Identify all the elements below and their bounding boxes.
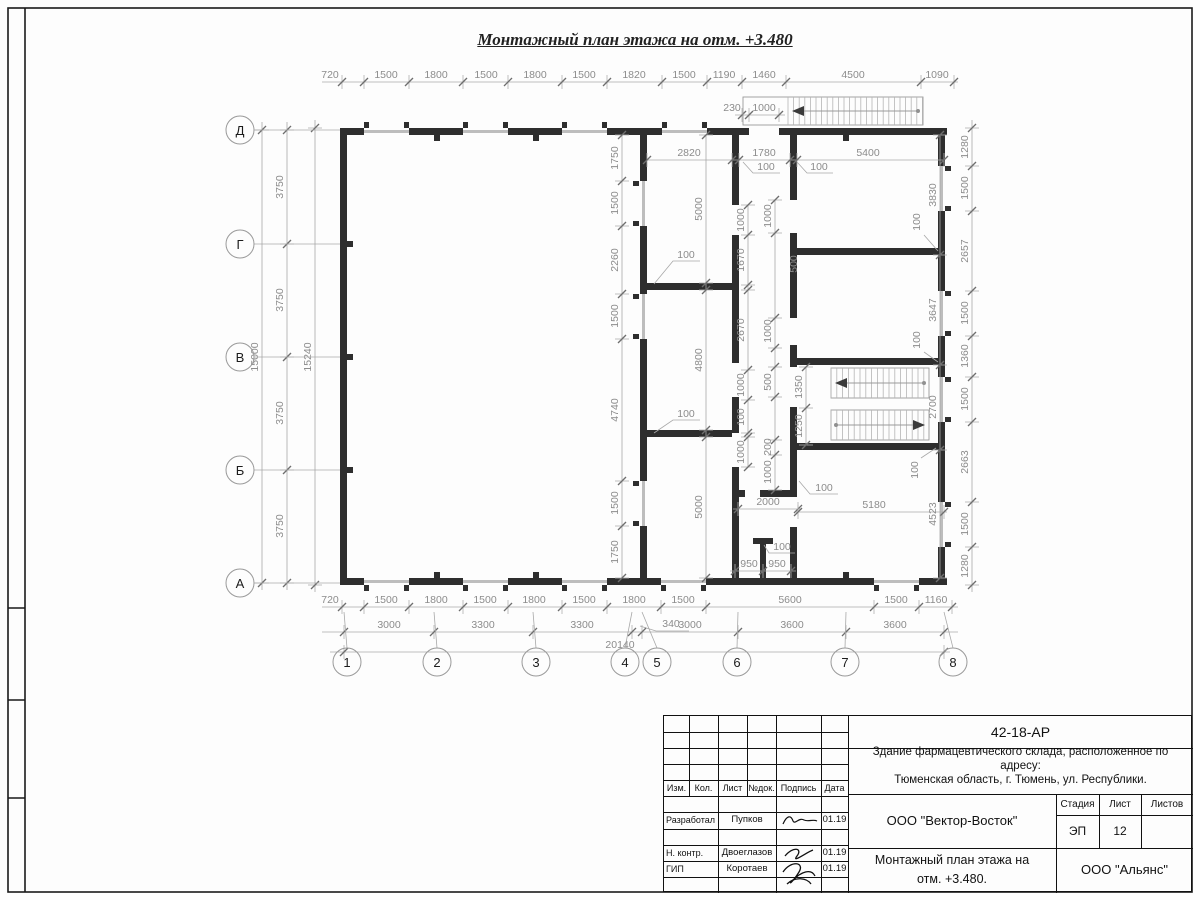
dimension-label: 1670 <box>735 248 747 272</box>
tb-sheet-value: 12 <box>1099 815 1141 848</box>
axis-label-6: 6 <box>733 655 740 670</box>
axis-label-Д: Д <box>236 123 245 138</box>
dimension-label: 3647 <box>927 298 939 322</box>
tb-stage-label: Стадия <box>1056 794 1099 815</box>
dimension-label: 1500 <box>884 594 908 606</box>
tb-company: ООО "Альянс" <box>1056 848 1193 893</box>
tb-doc-number: 42-18-АР <box>848 716 1193 748</box>
dimension-label: 1820 <box>622 69 646 81</box>
dimension-label: 3600 <box>883 619 907 631</box>
dimension-label: 3300 <box>471 619 495 631</box>
dimension-label: 1500 <box>374 69 398 81</box>
dimension-label: 340 <box>662 618 680 630</box>
tb-sheets-label: Листов <box>1141 794 1193 815</box>
dimension-label: 1090 <box>925 69 949 81</box>
dimension-label: 100 <box>810 161 828 173</box>
dimension-label: 720 <box>321 594 339 606</box>
tb-header-list: Лист <box>718 780 747 796</box>
tb-role-ncontrol: Н. контр. <box>666 845 718 861</box>
dimension-label: 1000 <box>752 102 776 114</box>
tb-sheet-label: Лист <box>1099 794 1141 815</box>
dimension-label: 500 <box>762 373 774 391</box>
dimension-label: 5000 <box>693 197 705 221</box>
dimension-label: 1360 <box>959 344 971 368</box>
tb-drawing-title-line2: отм. +3.480. <box>848 869 1056 890</box>
dimension-label: 1500 <box>959 176 971 200</box>
dimension-label: 5000 <box>693 495 705 519</box>
dimension-label: 1350 <box>793 375 805 399</box>
axis-label-5: 5 <box>653 655 660 670</box>
dimension-label: 100 <box>909 461 921 479</box>
dimension-label: 1800 <box>522 594 546 606</box>
drawing-sheet: Монтажный план этажа на отм. +3.480 <box>0 0 1200 900</box>
dimension-label: 1800 <box>622 594 646 606</box>
dimension-label: 2663 <box>959 450 971 474</box>
dimension-label: 1160 <box>925 594 948 606</box>
dimension-label: 100 <box>757 161 775 173</box>
axis-label-Г: Г <box>236 237 243 252</box>
dimension-label: 2000 <box>756 496 780 508</box>
dimension-label: 3600 <box>780 619 804 631</box>
tb-role-developer: Разработал <box>666 812 718 829</box>
dimension-label: 1000 <box>735 373 747 397</box>
tb-role-gip: ГИП <box>666 861 718 877</box>
dimension-label: 1800 <box>523 69 547 81</box>
dimension-label: 3300 <box>570 619 594 631</box>
dimension-label: 5180 <box>862 499 886 511</box>
dimension-label: 1750 <box>609 540 621 564</box>
dimension-label: 1800 <box>424 594 448 606</box>
tb-sheets-value <box>1141 815 1193 848</box>
dimension-label: 100 <box>911 213 923 231</box>
dimension-label: 3830 <box>927 183 939 207</box>
dimension-label: 3750 <box>274 175 286 199</box>
dimension-label: 1000 <box>762 204 774 228</box>
dimension-label: 100 <box>677 408 695 420</box>
axis-label-В: В <box>236 350 245 365</box>
dimension-label: 950 <box>768 558 786 570</box>
tb-org: ООО "Вектор-Восток" <box>848 794 1056 848</box>
dimension-label: 1500 <box>572 69 596 81</box>
dimension-label: 1250 <box>793 414 805 438</box>
dimension-label: 1500 <box>609 491 621 515</box>
tb-project-line1: Здание фармацевтического склада, располо… <box>852 748 1189 771</box>
dimension-label: 1280 <box>959 135 971 159</box>
dimension-label: 100 <box>677 249 695 261</box>
tb-header-date: Дата <box>821 780 848 796</box>
dimension-label: 1500 <box>959 387 971 411</box>
axis-label-2: 2 <box>433 655 440 670</box>
dimension-label: 4500 <box>841 69 865 81</box>
dimension-label: 1750 <box>609 146 621 170</box>
tb-name-gip: Коротаев <box>718 861 776 877</box>
windows <box>364 130 943 583</box>
axis-label-А: А <box>236 576 245 591</box>
dimension-label: 200 <box>762 438 774 456</box>
dimension-label: 1190 <box>713 69 736 81</box>
dimension-label: 5400 <box>856 147 880 159</box>
tb-stage-value: ЭП <box>1056 815 1099 848</box>
axis-label-3: 3 <box>532 655 539 670</box>
dimension-label: 3000 <box>377 619 401 631</box>
dimension-label: 230 <box>723 102 741 114</box>
dimension-label: 1000 <box>735 440 747 464</box>
dimension-label: 1500 <box>473 594 497 606</box>
dimension-label: 720 <box>321 69 339 81</box>
dimension-label: 2820 <box>677 147 701 159</box>
signature-approvers <box>777 842 821 892</box>
signature-developer <box>777 812 821 829</box>
dimension-label: 4800 <box>693 348 705 372</box>
dimension-label: 1800 <box>424 69 448 81</box>
dimension-label: 1500 <box>609 191 621 215</box>
dimension-label: 1280 <box>959 554 971 578</box>
tb-header-kol: Кол. <box>689 780 718 796</box>
dimension-label: 500 <box>788 255 800 273</box>
dimension-label: 1000 <box>762 319 774 343</box>
tb-header-izm: Изм. <box>664 780 689 796</box>
leader-lines <box>640 162 938 631</box>
dimension-label: 1460 <box>752 69 776 81</box>
tb-date-gip: 01.19 <box>821 861 848 877</box>
dimension-label: 100 <box>735 408 747 426</box>
dimension-label: 3750 <box>274 514 286 538</box>
dimension-label: 2657 <box>959 239 971 263</box>
dimension-label: 1780 <box>752 147 776 159</box>
tb-name-ncontrol: Двоеглазов <box>718 845 776 861</box>
axis-label-8: 8 <box>949 655 956 670</box>
dimension-label: 5600 <box>778 594 802 606</box>
tb-header-sign: Подпись <box>776 780 821 796</box>
tb-date-ncontrol: 01.19 <box>821 845 848 861</box>
dimension-label: 1500 <box>672 69 696 81</box>
axis-label-4: 4 <box>621 655 628 670</box>
axis-label-7: 7 <box>841 655 848 670</box>
dimension-label: 950 <box>740 558 758 570</box>
column-marks <box>347 122 951 591</box>
dimension-label: 100 <box>911 331 923 349</box>
tb-date-developer: 01.19 <box>821 812 848 829</box>
stair-direction-arrow <box>913 420 925 430</box>
tb-name-developer: Пупков <box>718 812 776 829</box>
dimension-label: 1000 <box>762 460 774 484</box>
axis-label-Б: Б <box>236 463 245 478</box>
dimension-label: 1500 <box>959 512 971 536</box>
dimension-label: 1500 <box>671 594 695 606</box>
tb-header-ndoc: №док. <box>747 780 776 796</box>
dimension-label: 1500 <box>572 594 596 606</box>
dimension-label: 1500 <box>959 301 971 325</box>
dimension-label: 3750 <box>274 288 286 312</box>
dimension-label: 4740 <box>609 398 621 422</box>
dimension-label: 3000 <box>678 619 702 631</box>
dimension-label: 100 <box>815 482 833 494</box>
dimension-label: 3750 <box>274 401 286 425</box>
dimension-label: 2670 <box>735 318 747 342</box>
title-block: Изм. Кол. Лист №док. Подпись Дата Разраб… <box>663 715 1192 892</box>
dimension-label: 100 <box>773 541 791 553</box>
dimension-label: 1500 <box>609 304 621 328</box>
dimension-label: 2260 <box>609 248 621 272</box>
dimension-label: 1500 <box>374 594 398 606</box>
tb-drawing-title-line1: Монтажный план этажа на <box>848 850 1056 871</box>
axis-label-1: 1 <box>343 655 350 670</box>
dimension-label: 4523 <box>927 502 939 526</box>
tb-project-line2: Тюменская область, г. Тюмень, ул. Респуб… <box>852 769 1189 792</box>
dimension-label: 1500 <box>474 69 498 81</box>
dimension-label: 1000 <box>735 208 747 232</box>
